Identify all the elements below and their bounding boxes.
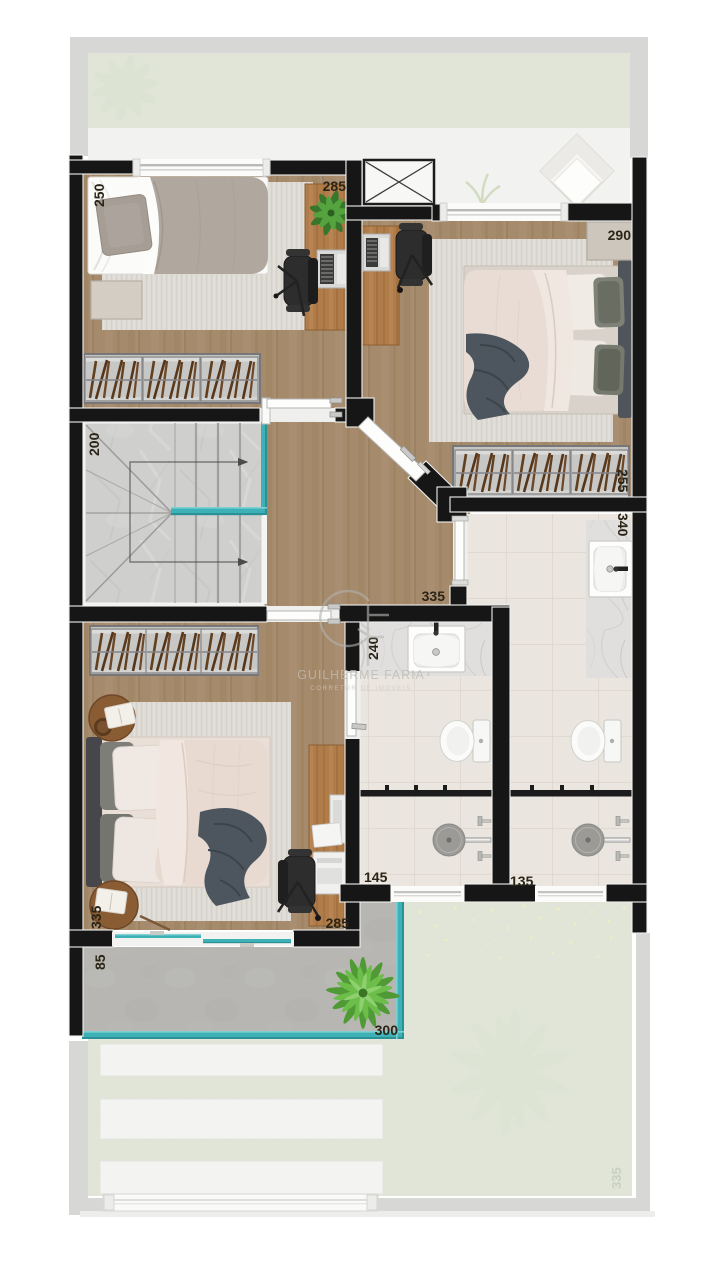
svg-text:285: 285: [323, 178, 347, 194]
svg-text:285: 285: [326, 915, 350, 931]
svg-text:335: 335: [88, 905, 104, 929]
svg-text:200: 200: [86, 432, 102, 456]
svg-text:335: 335: [609, 1167, 624, 1189]
svg-text:255: 255: [615, 469, 631, 493]
svg-text:290: 290: [608, 227, 632, 243]
svg-text:300: 300: [375, 1022, 399, 1038]
svg-text:340: 340: [615, 513, 631, 537]
svg-text:335: 335: [422, 588, 446, 604]
svg-text:135: 135: [510, 873, 534, 889]
svg-text:250: 250: [91, 183, 107, 207]
svg-text:CORRETOR DE IMOVEIS: CORRETOR DE IMOVEIS: [310, 686, 411, 692]
svg-text:GUILHERME FARIA: GUILHERME FARIA: [297, 668, 424, 682]
svg-text:145: 145: [364, 869, 388, 885]
svg-text:85: 85: [92, 954, 108, 970]
